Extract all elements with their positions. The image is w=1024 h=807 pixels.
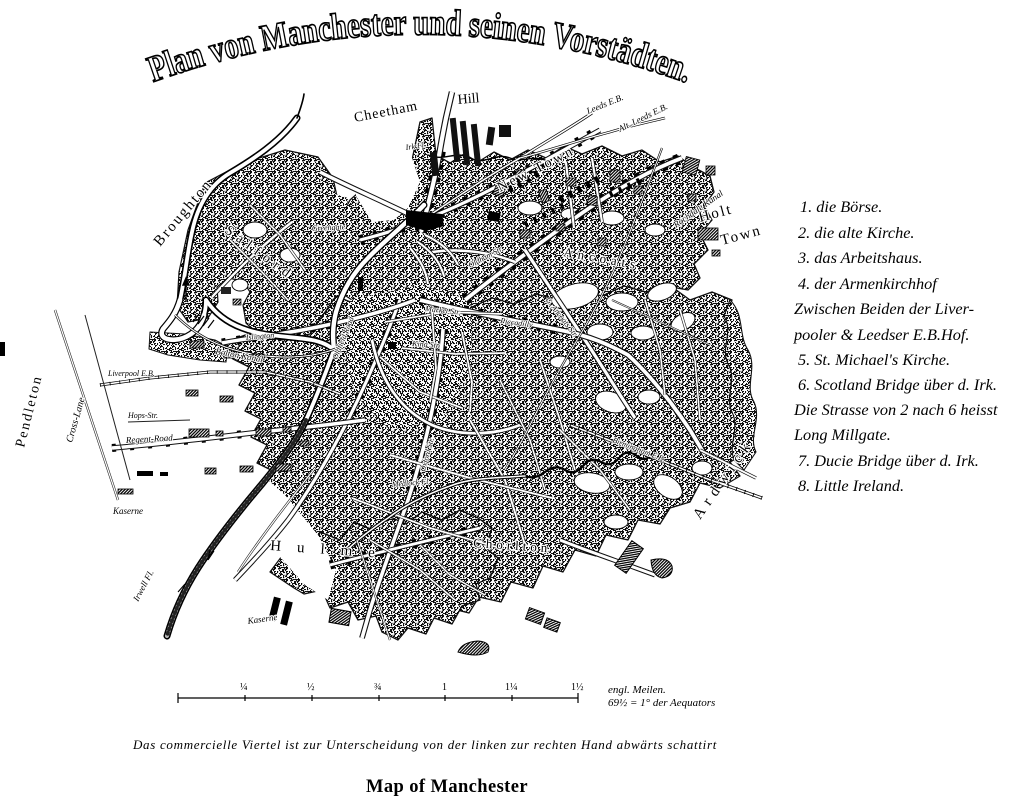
svg-text:4. der Armenkirchhof: 4. der Armenkirchhof (798, 274, 939, 293)
svg-text:3. das Arbeitshaus.: 3. das Arbeitshaus. (797, 248, 923, 267)
svg-text:Kaserne: Kaserne (112, 506, 143, 516)
svg-text:Greengate: Greengate (312, 222, 346, 233)
svg-text:¼: ¼ (240, 682, 248, 693)
svg-text:8. Little Ireland.: 8. Little Ireland. (798, 476, 904, 495)
svg-text:Zwischen Beiden der Liver-: Zwischen Beiden der Liver- (794, 299, 974, 318)
svg-text:1½: 1½ (571, 682, 584, 693)
svg-text:1¼: 1¼ (505, 682, 518, 693)
svg-text:Das commercielle Viertel ist: Das commercielle Viertel ist zur Untersc… (132, 737, 717, 752)
svg-text:½: ½ (307, 682, 315, 693)
svg-text:¾: ¾ (374, 682, 382, 693)
svg-text:Hill: Hill (457, 91, 480, 108)
svg-text:Hops-Str.: Hops-Str. (127, 411, 158, 420)
svg-text:6. Scotland Bridge über d. Ir: 6. Scotland Bridge über d. Irk. (798, 375, 997, 394)
svg-text:7. Ducie Bridge über d. Irk.: 7. Ducie Bridge über d. Irk. (798, 451, 979, 470)
svg-text:1. die Börse.: 1. die Börse. (800, 197, 882, 216)
svg-text:Long Millgate.: Long Millgate. (793, 425, 891, 444)
svg-text:Liverpool E.B.: Liverpool E.B. (107, 369, 155, 378)
svg-text:1: 1 (442, 682, 447, 693)
svg-text:pooler & Leedser E.B.Hof.: pooler & Leedser E.B.Hof. (793, 325, 969, 344)
svg-text:2. die alte Kirche.: 2. die alte Kirche. (798, 223, 915, 242)
svg-text:5. St. Michael's Kirche.: 5. St. Michael's Kirche. (798, 350, 950, 369)
svg-text:69½ = 1° der Aequators: 69½ = 1° der Aequators (608, 697, 715, 709)
svg-text:engl. Meilen.: engl. Meilen. (608, 684, 666, 696)
svg-text:Map of Manchester: Map of Manchester (366, 777, 528, 797)
svg-text:Die Strasse von 2 nach 6 heiss: Die Strasse von 2 nach 6 heisst (793, 400, 998, 419)
